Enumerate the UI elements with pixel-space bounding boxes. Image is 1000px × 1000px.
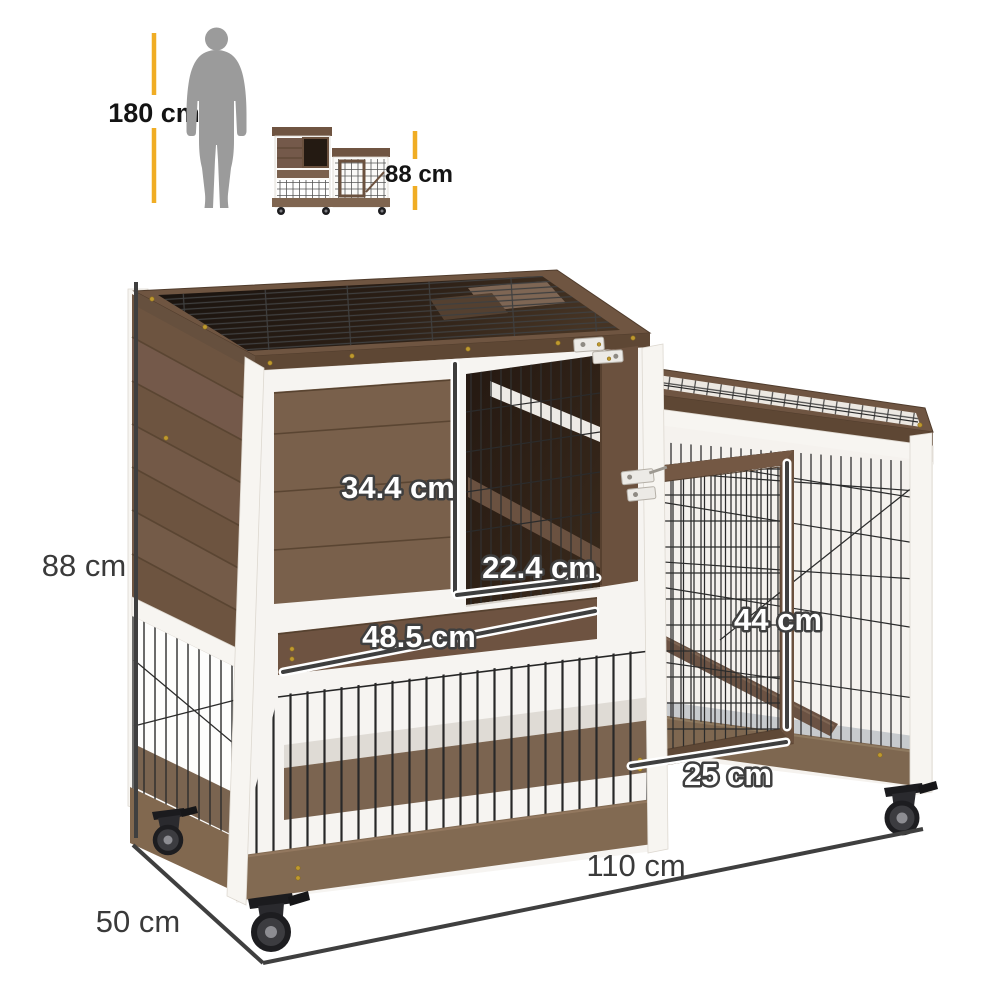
product-dimension-diagram: 34.4 cm 22.4 cm 48.5 cm 44 cm 25 cm 88 c… (0, 0, 1000, 1000)
human-height-label: 180 cm (108, 98, 200, 128)
upper-door-width-label: 22.4 cm (482, 550, 596, 585)
human-height-indicator: 180 cm (108, 33, 200, 203)
thumbnail-height-label: 88 cm (385, 161, 453, 188)
scale-reference: 180 cm (108, 28, 453, 216)
width-label: 110 cm (586, 848, 685, 883)
right-door-width-label: 25 cm (684, 757, 772, 792)
product-thumbnail (272, 127, 390, 215)
right-corner-post (910, 433, 932, 795)
height-label: 88 cm (42, 548, 126, 583)
thumbnail-height-indicator: 88 cm (385, 131, 453, 210)
caster-right-front (884, 781, 938, 833)
board-length-label: 48.5 cm (362, 619, 476, 654)
caster-left-front (248, 891, 310, 949)
dimension-height: 88 cm (42, 282, 136, 838)
human-silhouette (187, 28, 247, 209)
right-door-height-label: 44 cm (734, 602, 822, 637)
upper-door-stile (600, 346, 638, 587)
depth-label: 50 cm (96, 904, 180, 939)
upper-door-height-label: 34.4 cm (341, 470, 455, 505)
diagram-canvas: 34.4 cm 22.4 cm 48.5 cm 44 cm 25 cm 88 c… (0, 0, 1000, 1000)
